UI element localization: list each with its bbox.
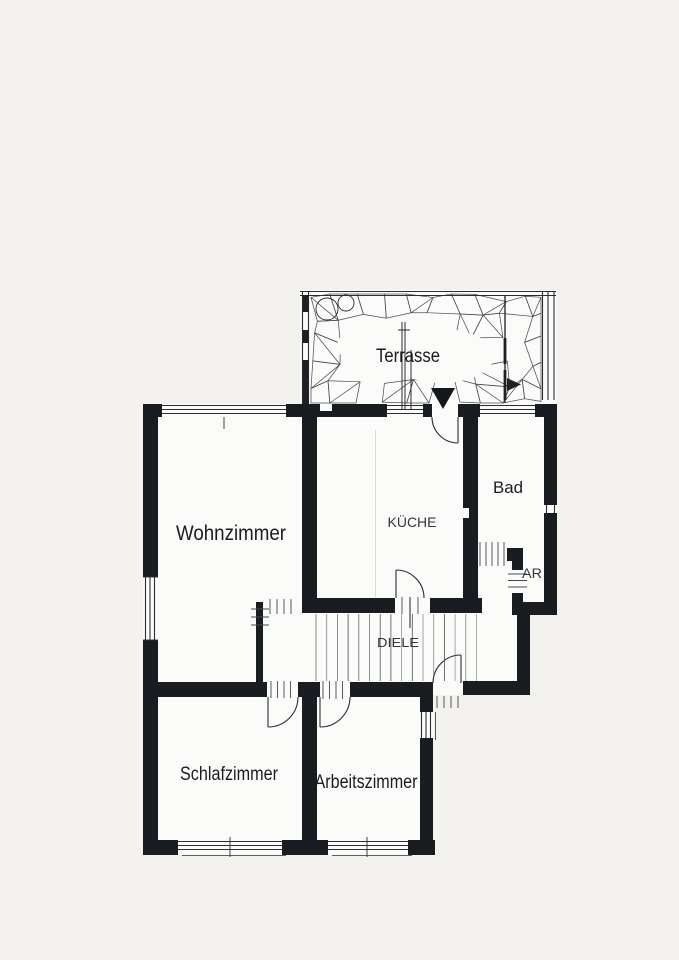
scanned-floor-plan-page: Terrasse Wohnzimmer KÜCHE Bad AR DIELE S… <box>0 0 679 960</box>
floorplan-svg: Terrasse Wohnzimmer KÜCHE Bad AR DIELE S… <box>0 0 679 960</box>
room-label-schlafzimmer: Schlafzimmer <box>180 764 279 785</box>
room-label-wohnzimmer: Wohnzimmer <box>176 522 286 545</box>
room-label-bad: Bad <box>493 478 523 497</box>
room-label-kueche: KÜCHE <box>388 513 437 530</box>
room-label-arbeitszimmer: Arbeitszimmer <box>315 772 419 793</box>
room-label-diele: DIELE <box>377 635 419 650</box>
room-label-abstellraum: AR <box>522 565 542 581</box>
room-label-terrasse: Terrasse <box>376 346 440 367</box>
